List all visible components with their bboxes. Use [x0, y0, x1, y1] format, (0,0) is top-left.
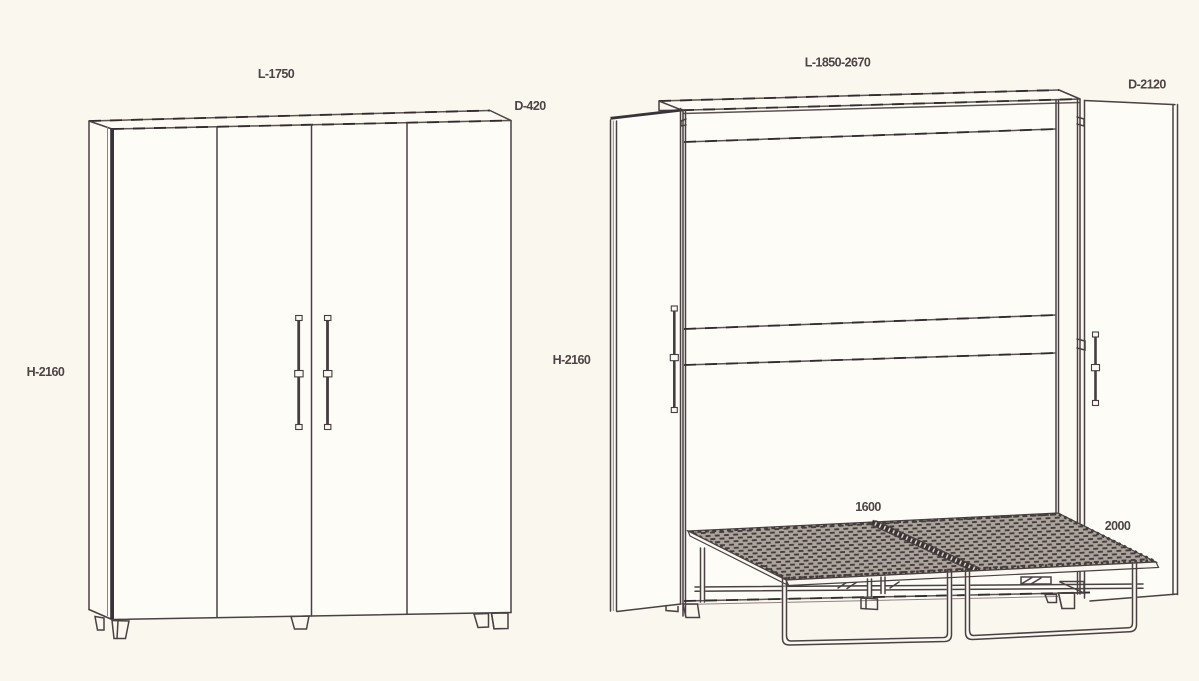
svg-text:2000: 2000: [1105, 519, 1131, 533]
svg-text:H-2160: H-2160: [553, 353, 591, 367]
svg-text:1600: 1600: [855, 500, 881, 514]
svg-text:L-1750: L-1750: [258, 67, 295, 81]
svg-text:L-1850-2670: L-1850-2670: [805, 56, 871, 70]
svg-text:D-2120: D-2120: [1128, 78, 1166, 92]
svg-text:H-2160: H-2160: [27, 365, 65, 379]
svg-text:D-420: D-420: [514, 99, 546, 113]
